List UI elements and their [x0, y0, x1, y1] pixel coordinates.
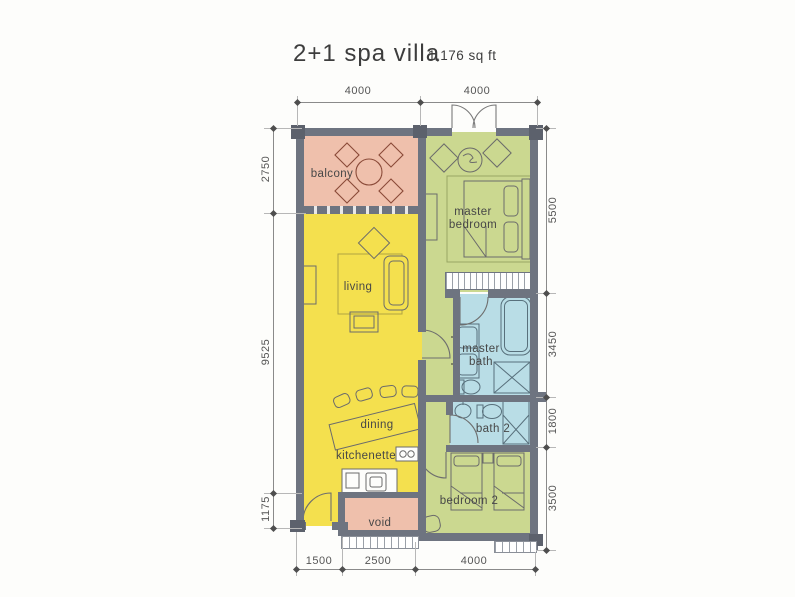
wall-segment — [426, 395, 538, 402]
dim-label-right-1: 5500 — [547, 190, 559, 230]
dim-label-top-1: 4000 — [338, 85, 378, 97]
dim-label-right-3: 1800 — [547, 401, 559, 441]
dim-label-top-2: 4000 — [457, 85, 497, 97]
dim-line-left — [273, 128, 274, 528]
wall-segment — [296, 128, 304, 530]
floorplan-drawing — [0, 0, 795, 597]
wall-segment — [418, 136, 426, 332]
dim-label-bottom-3: 4000 — [454, 555, 494, 567]
dim-label-left-2: 9525 — [260, 332, 272, 372]
wall-corner — [413, 125, 427, 138]
wall-segment — [446, 445, 538, 452]
dim-label-bottom-2: 2500 — [358, 555, 398, 567]
wall-segment — [488, 290, 530, 298]
french-door-icon — [452, 105, 496, 128]
side-table-icon — [458, 148, 482, 172]
wall-segment — [530, 128, 538, 551]
dim-label-left-1: 2750 — [260, 149, 272, 189]
dim-label-right-2: 3450 — [547, 324, 559, 364]
room-label-master-bath: master bath — [454, 343, 508, 369]
toilet-icon — [477, 405, 502, 419]
room-label-bedroom2: bedroom 2 — [434, 495, 504, 508]
wardrobe-icon — [445, 272, 531, 290]
coffee-table-icon — [350, 312, 378, 332]
toilet-icon — [457, 380, 480, 394]
room-label-master-bedroom: master bedroom — [441, 206, 505, 232]
wall-segment — [424, 128, 452, 136]
master-bedroom-furniture — [424, 139, 531, 262]
wall-segment — [446, 402, 453, 415]
wall-segment — [445, 290, 460, 298]
dining-furniture — [329, 385, 421, 450]
wall-corner — [290, 520, 305, 532]
wall-segment — [340, 492, 418, 498]
room-label-living: living — [328, 281, 388, 294]
room-label-kitchenette: kitchenette — [326, 450, 406, 463]
room-label-void: void — [355, 517, 405, 530]
sliding-window-icon — [304, 206, 418, 214]
room-label-dining: dining — [347, 419, 407, 432]
window-louvre-icon — [494, 541, 537, 553]
wall-segment — [296, 128, 424, 136]
room-label-bath2: bath 2 — [467, 423, 519, 436]
floorplan-page: 2+1 spa villa 1,176 sq ft — [0, 0, 795, 597]
nightstand-icon — [483, 453, 493, 463]
room-label-balcony: balcony — [302, 168, 362, 181]
wall-segment — [418, 533, 538, 541]
dining-chair-icon — [332, 385, 418, 409]
dim-label-bottom-1: 1500 — [299, 555, 339, 567]
tv-console-icon — [302, 266, 316, 304]
bedroom2-furniture — [422, 453, 524, 533]
window-louvre-icon — [341, 536, 419, 549]
wall-segment — [418, 360, 426, 541]
dim-label-left-3: 1175 — [260, 489, 272, 529]
dim-label-right-4: 3500 — [547, 478, 559, 518]
living-furniture — [302, 227, 408, 332]
